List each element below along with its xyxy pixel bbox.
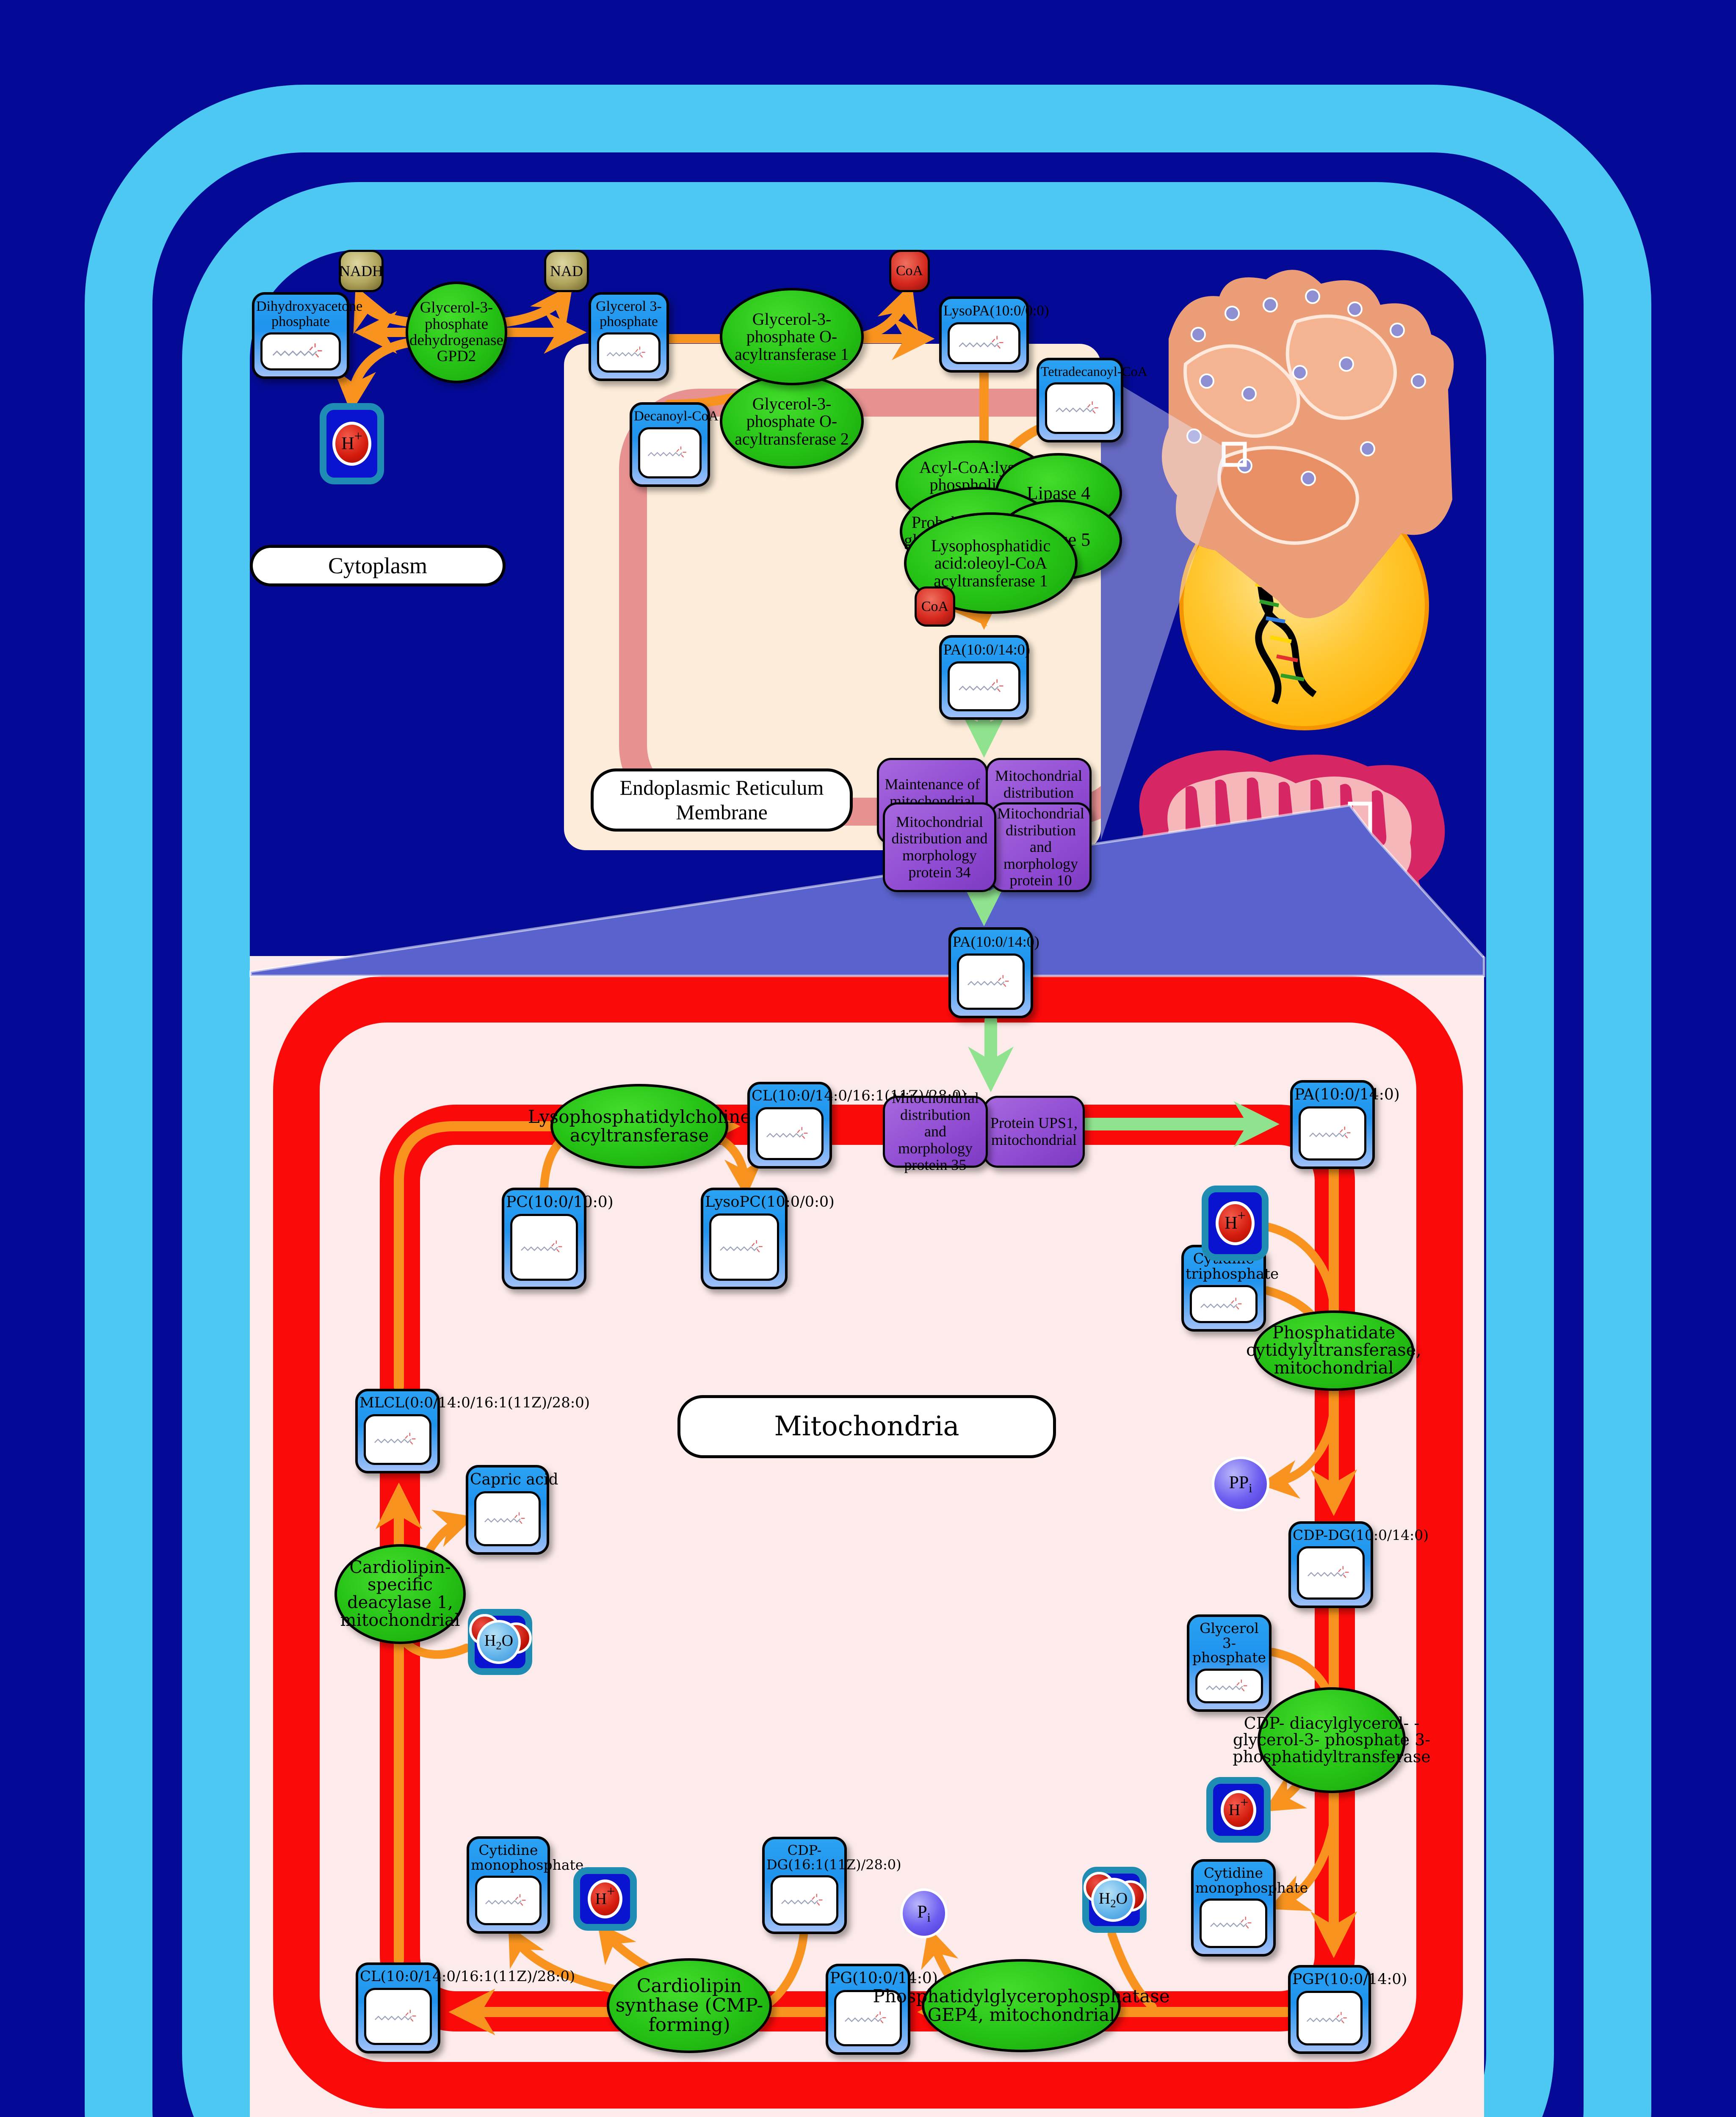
metabolite-pa-er[interactable]: PA(10:0/14:0) [939, 635, 1029, 720]
metabolite-cl-top[interactable]: CL(10:0/14:0/16:1(11Z)/28:0) [747, 1082, 832, 1169]
metabolite-lysopa[interactable]: LysoPA(10:0/0:0) [939, 296, 1029, 373]
coa-badge-top[interactable]: CoA [889, 250, 930, 292]
pa-structure [957, 953, 1025, 1010]
metabolite-cdp-dg2[interactable]: CDP- DG(16:1(11Z)/28:0) [762, 1837, 847, 1934]
enzyme-gep4[interactable]: Phosphatidylglycerophosphatase GEP4, mit… [922, 1959, 1121, 2052]
metabolite-g3p-mito[interactable]: Glycerol 3-phosphate [1187, 1614, 1272, 1712]
cdp-dg-structure [1297, 1546, 1365, 1600]
h-plus-badge-left[interactable]: H+ [573, 1867, 637, 1931]
enzyme-cdp-dag-g3p-phosphatidyltransferase[interactable]: CDP- diacylglycerol- -glycerol-3- phosph… [1258, 1687, 1406, 1793]
process-mdm34[interactable]: Mitochondrial distribution and morpholog… [883, 802, 996, 892]
metabolite-cl-bottom[interactable]: CL(10:0/14:0/16:1(11Z)/28:0) [356, 1962, 440, 2053]
ctp-structure [1190, 1285, 1258, 1323]
lysopc-structure [709, 1213, 779, 1281]
cdp-dg2-structure [771, 1875, 838, 1926]
enzyme-phosphatidate-cytidylyltransferase[interactable]: Phosphatidate cytidylyltransferase, mito… [1253, 1310, 1414, 1391]
h-plus-icon: H+ [588, 1879, 622, 1918]
h2o-icon: H2O [477, 1620, 523, 1664]
h2o-badge-right[interactable]: H2O [1082, 1867, 1147, 1933]
decanoyl-structure [638, 427, 702, 478]
h-plus-icon: H+ [332, 422, 371, 466]
h-plus-cytoplasm-badge[interactable]: H+ [320, 403, 384, 484]
metabolite-cmp-left[interactable]: Cytidine monophosphate [467, 1836, 550, 1934]
metabolite-pa-mito[interactable]: PA(10:0/14:0) [1290, 1080, 1375, 1169]
enzyme-gpat1[interactable]: Glycerol-3- phosphate O-acyltransferase … [720, 288, 864, 385]
metabolite-tetradecanoyl-coa[interactable]: Tetradecanoyl-CoA [1037, 358, 1123, 442]
metabolite-pgp[interactable]: PGP(10:0/14:0) [1288, 1965, 1371, 2054]
er-membrane-label: Endoplasmic Reticulum Membrane [591, 768, 853, 832]
nad-badge[interactable]: NAD [544, 250, 589, 292]
enzyme-lpcat[interactable]: Lysophosphatidylcholine acyltransferase [550, 1084, 728, 1169]
g3p-structure [1195, 1669, 1263, 1703]
h-plus-badge-ctp[interactable]: H+ [1202, 1186, 1269, 1261]
process-ups1[interactable]: Protein UPS1, mitochondrial [983, 1096, 1085, 1168]
enzyme-cardiolipin-synthase[interactable]: Cardiolipin synthase (CMP-forming) [607, 1958, 772, 2053]
h-plus-badge-right[interactable]: H+ [1206, 1777, 1271, 1843]
process-mdm35[interactable]: Mitochondrial distribution and morpholog… [883, 1096, 988, 1168]
metabolite-dhap[interactable]: Dihydroxyacetone phosphate [252, 292, 349, 379]
pc-structure [510, 1214, 578, 1281]
cl-structure [756, 1107, 824, 1160]
nadh-badge[interactable]: NADH [339, 250, 384, 292]
pa-structure [1299, 1106, 1366, 1161]
metabolite-mlcl[interactable]: MLCL(0:0/14:0/16:1(11Z)/28:0) [355, 1389, 440, 1473]
metabolite-pc[interactable]: PC(10:0/10:0) [502, 1188, 586, 1289]
h2o-icon: H2O [1091, 1878, 1138, 1922]
metabolite-cmp-right[interactable]: Cytidine monophosphate [1191, 1859, 1276, 1957]
lysopa-structure [948, 322, 1020, 364]
coa-badge-mid[interactable]: CoA [915, 586, 955, 627]
cytoplasm-label: Cytoplasm [250, 545, 506, 586]
cmp-structure [1200, 1899, 1267, 1948]
process-mdm10[interactable]: Mitochondrial distribution and morpholog… [990, 802, 1092, 892]
h-plus-icon: H+ [1216, 1201, 1255, 1245]
metabolite-cdp-dg[interactable]: CDP-DG(10:0/14:0) [1288, 1521, 1373, 1608]
mitochondria-label: Mitochondria [677, 1395, 1056, 1458]
capric-structure [474, 1491, 541, 1546]
ppi-badge[interactable]: PPi [1212, 1456, 1269, 1512]
metabolite-capric-acid[interactable]: Capric acid [466, 1465, 549, 1555]
h2o-badge-left[interactable]: H2O [468, 1609, 532, 1675]
enzyme-gpd2[interactable]: Glycerol-3- phosphate dehydrogenase GPD2 [406, 282, 507, 383]
cl-structure [364, 1988, 432, 2045]
pathway-diagram: Cytoplasm Endoplasmic Reticulum Membrane… [0, 0, 1736, 2117]
metabolite-lysopc[interactable]: LysoPC(10:0/0:0) [701, 1188, 788, 1289]
tetradecanoyl-structure [1045, 382, 1115, 434]
mlcl-structure [364, 1414, 431, 1465]
enzyme-gpat2[interactable]: Glycerol-3- phosphate O-acyltransferase … [720, 374, 864, 469]
pgp-structure [1296, 1991, 1363, 2045]
pa-structure [948, 661, 1020, 711]
metabolite-decanoyl-coa[interactable]: Decanoyl-CoA [630, 402, 710, 487]
pi-badge[interactable]: Pi [900, 1888, 948, 1938]
cmp-structure [475, 1876, 542, 1925]
g3p-structure [597, 332, 661, 373]
metabolite-pa-intermembrane[interactable]: PA(10:0/14:0) [948, 927, 1033, 1018]
enzyme-cardiolipin-deacylase1[interactable]: Cardiolipin- specific deacylase 1, mitoc… [334, 1544, 466, 1644]
metabolite-g3p-er[interactable]: Glycerol 3-phosphate [589, 292, 669, 381]
h-plus-icon: H+ [1221, 1790, 1256, 1830]
dhap-structure [260, 332, 341, 370]
